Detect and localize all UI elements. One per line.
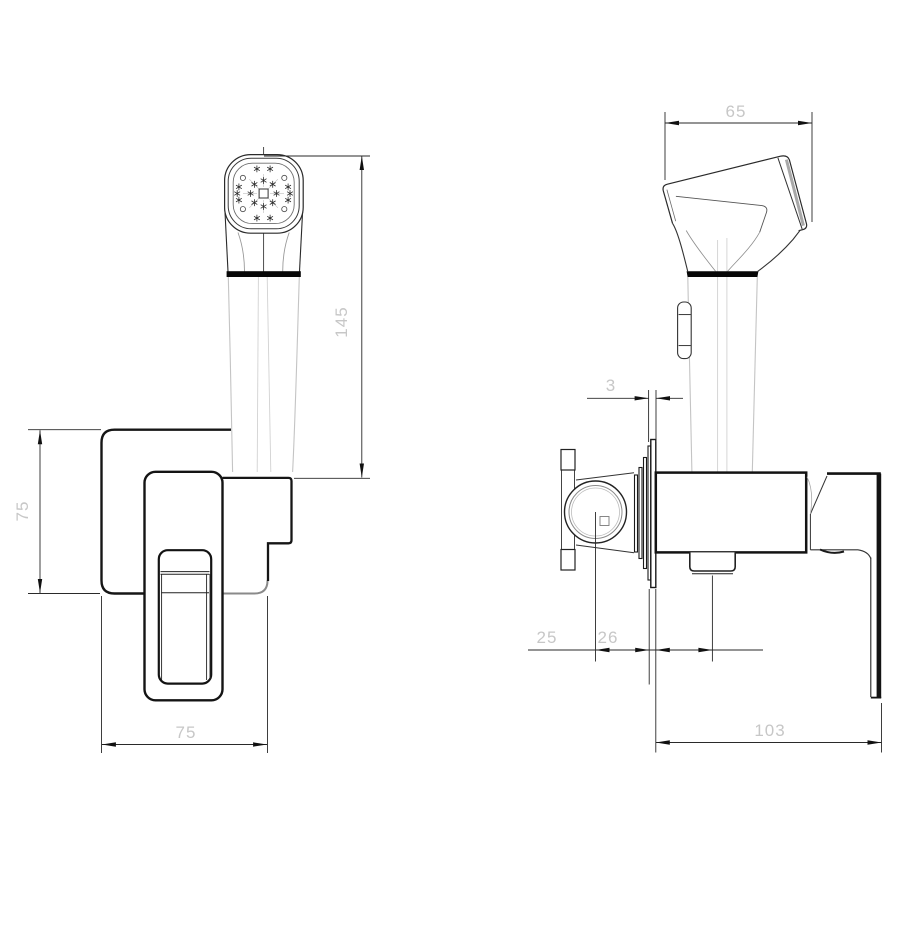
- bracket-tab-bottom: [561, 550, 575, 571]
- drawing-sheet: 145 75 75: [0, 0, 905, 939]
- spray-face-side: [786, 160, 803, 226]
- bracket-tab-top: [561, 450, 575, 471]
- dim-label-3: 3: [606, 376, 616, 395]
- dim-label-75-horizontal: 75: [176, 723, 197, 742]
- center-nozzle: [259, 189, 268, 198]
- holder-bracket-front: [223, 478, 292, 581]
- handle-front-profile: [228, 277, 299, 472]
- spray-button: [678, 302, 692, 359]
- mixer-body-side: [656, 473, 806, 553]
- dim-label-65: 65: [726, 102, 747, 121]
- dim-plate-height-75: 75: [13, 430, 101, 594]
- side-view: 65 3 25 26: [528, 102, 882, 753]
- lever-handle: [159, 550, 211, 683]
- grip-band-side: [687, 271, 759, 277]
- dim-label-75-vertical: 75: [13, 501, 32, 522]
- inlet-elbow: [561, 450, 634, 571]
- holder-hook-side: [807, 474, 881, 698]
- technical-drawing: 145 75 75: [0, 0, 905, 939]
- dim-label-145: 145: [332, 306, 351, 337]
- dim-label-25: 25: [537, 628, 558, 647]
- front-view: 145 75 75: [13, 147, 370, 753]
- dim-label-103: 103: [754, 721, 785, 740]
- shower-head-side: [663, 156, 807, 277]
- dim-label-26: 26: [598, 628, 619, 647]
- dim-plate-thickness-3: 3: [587, 376, 683, 442]
- dim-body-depth-103: 103: [656, 685, 882, 753]
- flange-stack: [635, 440, 656, 588]
- outlet-stub: [690, 552, 735, 573]
- grip-band-front: [227, 271, 301, 277]
